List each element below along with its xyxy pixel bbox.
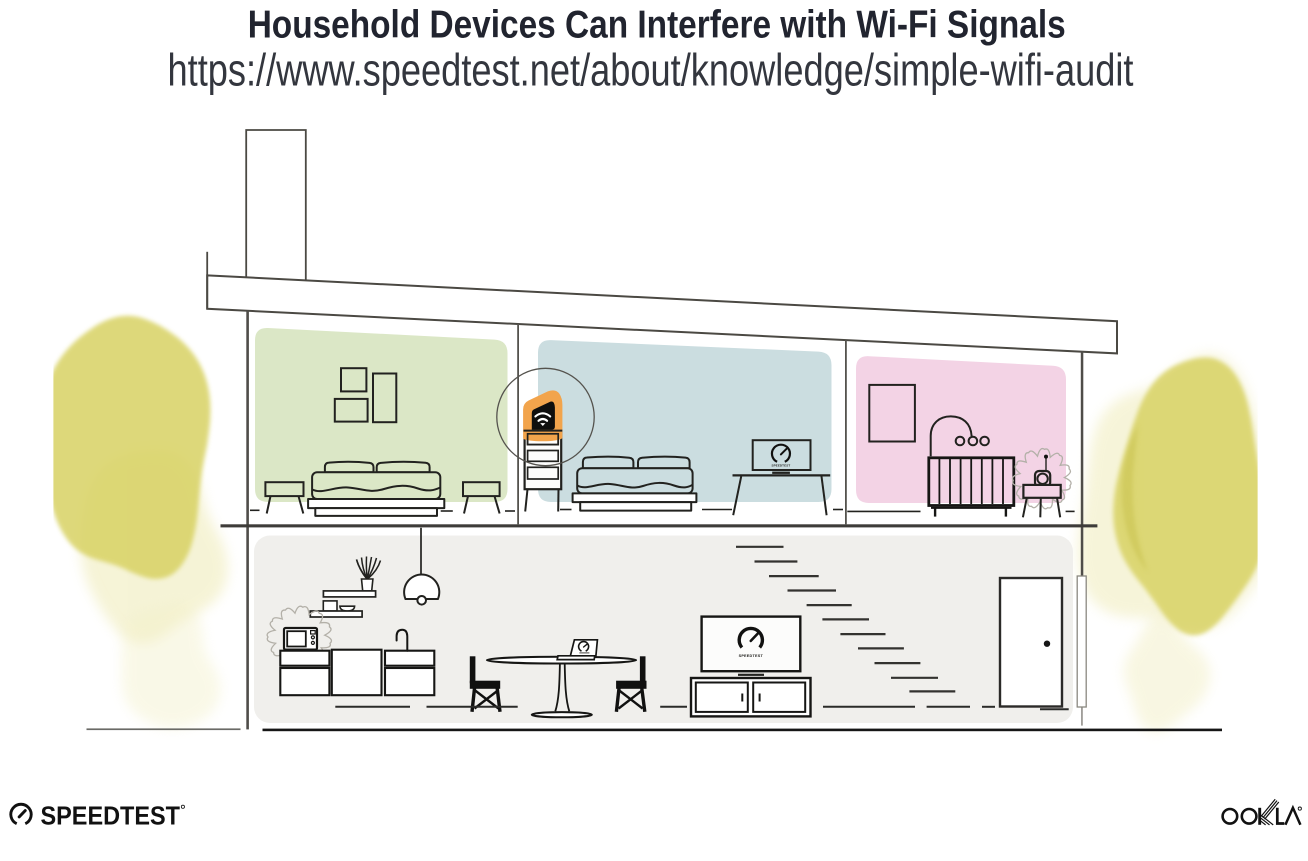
svg-text:SPEEDTEST: SPEEDTEST <box>772 464 791 468</box>
svg-text:SPEEDTEST: SPEEDTEST <box>41 802 181 830</box>
svg-text:https://www.speedtest.net/abou: https://www.speedtest.net/about/knowledg… <box>168 45 1134 96</box>
svg-text:Household Devices Can Interfer: Household Devices Can Interfere with Wi-… <box>248 4 1066 47</box>
svg-text:SPEEDTEST: SPEEDTEST <box>739 654 764 658</box>
